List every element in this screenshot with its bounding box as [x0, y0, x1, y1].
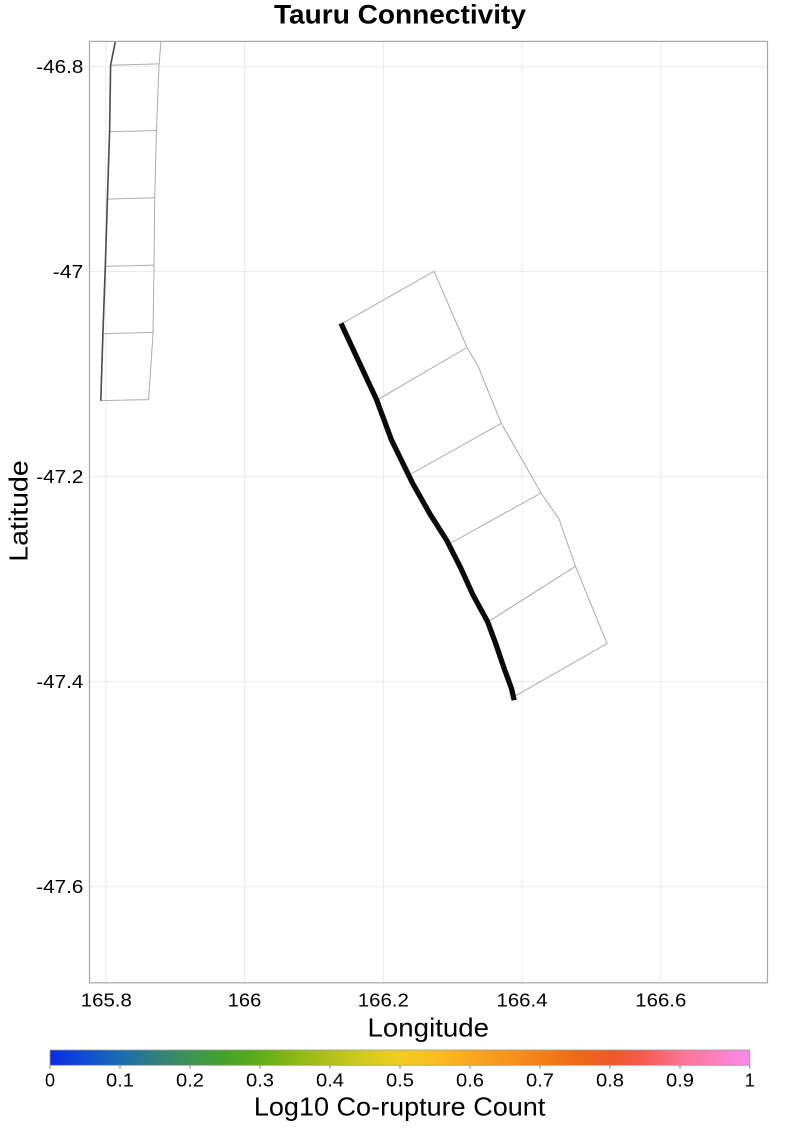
- svg-text:0.4: 0.4: [316, 1070, 344, 1090]
- svg-text:0.9: 0.9: [666, 1070, 694, 1090]
- svg-text:165.8: 165.8: [81, 990, 132, 1010]
- svg-text:0.5: 0.5: [386, 1070, 414, 1090]
- svg-text:Log10 Co-rupture Count: Log10 Co-rupture Count: [254, 1091, 546, 1121]
- svg-text:166.2: 166.2: [358, 990, 409, 1010]
- svg-text:0.2: 0.2: [176, 1070, 204, 1090]
- svg-text:Tauru Connectivity: Tauru Connectivity: [274, 0, 526, 30]
- svg-text:166.6: 166.6: [635, 990, 686, 1010]
- svg-text:Latitude: Latitude: [4, 460, 34, 562]
- svg-text:0.7: 0.7: [526, 1070, 554, 1090]
- svg-text:166: 166: [228, 990, 262, 1010]
- svg-text:-46.8: -46.8: [36, 57, 83, 77]
- svg-text:0.8: 0.8: [596, 1070, 624, 1090]
- svg-text:-47.4: -47.4: [36, 672, 83, 692]
- svg-text:-47: -47: [53, 262, 84, 282]
- svg-text:0.6: 0.6: [456, 1070, 484, 1090]
- svg-text:166.4: 166.4: [497, 990, 548, 1010]
- svg-text:0.3: 0.3: [246, 1070, 274, 1090]
- svg-text:-47.6: -47.6: [36, 877, 83, 897]
- svg-text:0.1: 0.1: [106, 1070, 134, 1090]
- svg-text:Longitude: Longitude: [368, 1013, 490, 1043]
- svg-text:-47.2: -47.2: [36, 467, 83, 487]
- svg-text:1: 1: [745, 1070, 755, 1090]
- svg-text:0: 0: [45, 1070, 55, 1090]
